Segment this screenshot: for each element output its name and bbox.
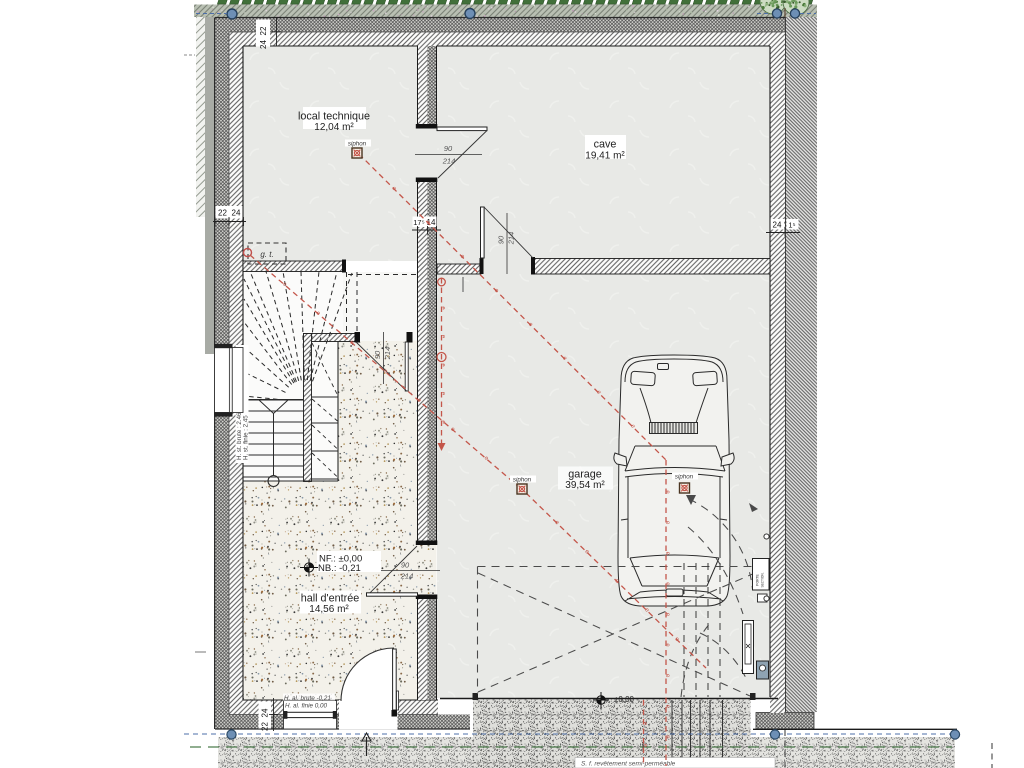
- svg-text:39,54 m²: 39,54 m²: [565, 480, 605, 491]
- svg-text:22: 22: [259, 26, 268, 35]
- svg-text:214: 214: [400, 572, 414, 581]
- svg-text:24: 24: [259, 40, 268, 49]
- svg-text:S. f. revêtement semi-perméabl: S. f. revêtement semi-perméable: [581, 761, 676, 768]
- svg-text:90: 90: [444, 144, 453, 153]
- svg-text:19,41 m²: 19,41 m²: [585, 151, 625, 162]
- svg-text:NB.: -0,21: NB.: -0,21: [318, 563, 361, 574]
- svg-text:SECTION.: SECTION.: [761, 572, 765, 587]
- svg-text:H. st. finie : 2.45: H. st. finie : 2.45: [243, 415, 250, 460]
- svg-text:90: 90: [373, 350, 382, 359]
- svg-text:22: 22: [261, 722, 270, 731]
- svg-text:H. al. brute -0,21: H. al. brute -0,21: [284, 695, 331, 702]
- svg-text:cave: cave: [594, 139, 617, 151]
- svg-text:±0,00: ±0,00: [614, 695, 635, 704]
- svg-text:siphon: siphon: [675, 474, 694, 481]
- svg-text:214: 214: [383, 347, 392, 361]
- svg-text:90: 90: [401, 561, 410, 570]
- svg-text:PORTE: PORTE: [756, 573, 760, 585]
- svg-text:24: 24: [773, 221, 782, 230]
- svg-text:22: 22: [218, 209, 227, 218]
- svg-text:24: 24: [261, 708, 270, 717]
- svg-text:siphon: siphon: [513, 477, 532, 484]
- svg-text:hall d'entrée: hall d'entrée: [301, 593, 360, 605]
- svg-text:17⁵: 17⁵: [413, 218, 424, 227]
- svg-text:24: 24: [232, 209, 241, 218]
- svg-text:local technique: local technique: [298, 111, 370, 123]
- svg-text:1⁵: 1⁵: [788, 221, 795, 230]
- svg-text:214: 214: [507, 232, 516, 246]
- svg-text:12,04 m²: 12,04 m²: [314, 122, 354, 133]
- svg-text:90: 90: [497, 235, 506, 244]
- svg-text:H. al. finie 0,00: H. al. finie 0,00: [285, 703, 328, 710]
- svg-text:g. t.: g. t.: [260, 250, 273, 259]
- svg-text:214: 214: [442, 157, 456, 166]
- svg-text:14,56 m²: 14,56 m²: [309, 604, 349, 615]
- svg-text:siphon: siphon: [348, 141, 367, 148]
- svg-text:garage: garage: [568, 469, 602, 481]
